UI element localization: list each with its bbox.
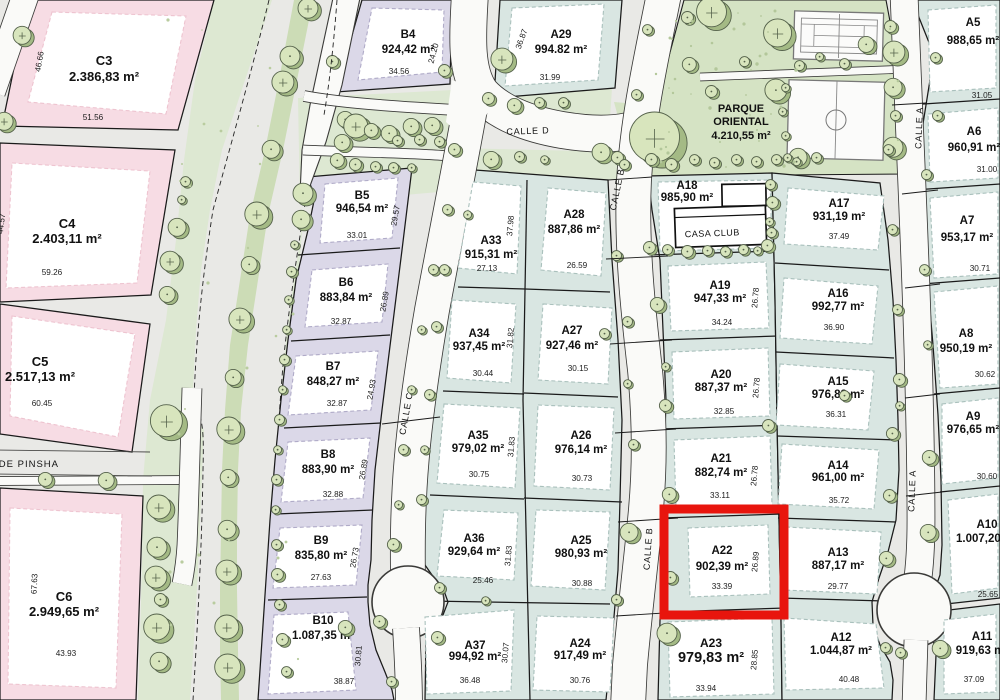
svg-text:976,88 m²: 976,88 m² [812,389,865,401]
svg-text:32.88: 32.88 [323,490,344,499]
svg-text:26.78: 26.78 [749,465,760,487]
svg-text:A24: A24 [569,638,591,650]
svg-text:2.517,13 m²: 2.517,13 m² [5,369,76,384]
svg-text:28.85: 28.85 [749,649,760,671]
svg-text:C6: C6 [56,589,73,604]
svg-text:A17: A17 [828,198,849,210]
svg-text:B10: B10 [312,615,333,627]
svg-text:34.56: 34.56 [389,67,410,76]
svg-text:A10: A10 [976,519,997,531]
svg-text:A34: A34 [468,328,490,340]
svg-text:35.72: 35.72 [829,496,850,505]
svg-text:31.83: 31.83 [503,545,514,567]
svg-text:B9: B9 [314,535,329,547]
svg-text:A35: A35 [467,430,489,442]
svg-text:887,17 m²: 887,17 m² [812,560,865,572]
svg-text:950,19 m²: 950,19 m² [940,343,993,355]
svg-text:2.386,83 m²: 2.386,83 m² [69,69,140,84]
svg-text:994,92 m²: 994,92 m² [449,651,502,663]
svg-text:937,45 m²: 937,45 m² [453,341,506,353]
svg-text:A9: A9 [966,411,981,423]
svg-text:A13: A13 [827,547,848,559]
svg-text:O DE PINSHA: O DE PINSHA [0,459,59,470]
svg-text:CASA CLUB: CASA CLUB [685,227,740,239]
svg-text:985,90 m²: 985,90 m² [661,192,714,204]
svg-text:A21: A21 [710,453,732,465]
svg-text:B8: B8 [321,449,336,461]
svg-text:B4: B4 [401,29,416,41]
svg-text:PARQUE: PARQUE [718,103,764,115]
svg-text:32.87: 32.87 [327,399,348,408]
svg-text:32.87: 32.87 [331,317,352,326]
svg-text:67.63: 67.63 [29,573,39,594]
svg-text:36.90: 36.90 [824,323,845,332]
svg-text:CALLE D: CALLE D [506,125,549,136]
svg-text:C3: C3 [96,53,113,68]
svg-text:A20: A20 [710,369,731,381]
svg-text:37.09: 37.09 [964,675,985,684]
svg-text:A6: A6 [967,126,982,138]
svg-text:30.76: 30.76 [570,676,591,685]
svg-text:1.044,87 m²: 1.044,87 m² [810,645,872,657]
svg-text:A33: A33 [480,235,501,247]
svg-text:33.39: 33.39 [712,582,733,591]
svg-text:30.62: 30.62 [975,370,996,379]
svg-text:A11: A11 [972,631,993,643]
svg-text:C5: C5 [32,354,49,369]
svg-text:30.60: 30.60 [977,472,998,481]
svg-text:31.82: 31.82 [505,327,516,349]
svg-text:1.007,20 m²: 1.007,20 m² [956,533,1000,545]
svg-text:34.24: 34.24 [712,318,733,327]
svg-text:26.78: 26.78 [751,377,762,399]
svg-text:A27: A27 [561,325,582,337]
svg-text:32.85: 32.85 [714,407,735,416]
svg-text:43.93: 43.93 [56,649,77,658]
svg-text:30.71: 30.71 [970,264,991,273]
svg-text:947,33 m²: 947,33 m² [694,293,747,305]
svg-text:26.59: 26.59 [567,261,588,270]
svg-text:B6: B6 [339,277,354,289]
svg-text:A8: A8 [959,328,974,340]
svg-text:CALLE A: CALLE A [906,470,917,512]
svg-text:917,49 m²: 917,49 m² [554,650,607,662]
svg-text:A14: A14 [827,460,849,472]
svg-text:A16: A16 [827,288,848,300]
svg-text:883,84 m²: 883,84 m² [320,292,373,304]
svg-text:946,54 m²: 946,54 m² [336,203,389,215]
svg-text:31.83: 31.83 [506,436,517,458]
svg-text:A19: A19 [709,280,730,292]
svg-text:31.00: 31.00 [977,165,998,174]
svg-text:960,91 m²: 960,91 m² [948,142,1000,154]
svg-text:2.949,65 m²: 2.949,65 m² [29,604,100,619]
svg-text:30.15: 30.15 [568,364,589,373]
svg-text:30.81: 30.81 [353,645,364,667]
svg-text:4.210,55 m²: 4.210,55 m² [711,130,771,142]
svg-text:59.26: 59.26 [42,268,63,277]
svg-text:60.45: 60.45 [32,399,53,408]
svg-text:961,00 m²: 961,00 m² [812,472,865,484]
svg-text:924,42 m²: 924,42 m² [382,44,435,56]
svg-text:25.65: 25.65 [978,590,999,599]
svg-text:A22: A22 [711,545,732,557]
svg-text:26.89: 26.89 [750,551,761,573]
svg-text:A12: A12 [830,632,851,644]
svg-text:979,83 m²: 979,83 m² [678,650,744,666]
svg-text:31.05: 31.05 [972,91,993,100]
svg-text:30.88: 30.88 [572,579,593,588]
svg-text:30.75: 30.75 [469,470,490,479]
svg-text:883,90 m²: 883,90 m² [302,464,355,476]
svg-text:976,14 m²: 976,14 m² [555,444,608,456]
svg-text:927,46 m²: 927,46 m² [546,340,599,352]
svg-text:33.01: 33.01 [347,231,368,240]
svg-text:CALLE A: CALLE A [913,107,924,149]
svg-text:29.77: 29.77 [828,582,849,591]
svg-text:30.07: 30.07 [500,642,511,664]
svg-text:B5: B5 [355,190,370,202]
svg-text:33.94: 33.94 [696,684,717,693]
svg-text:992,77 m²: 992,77 m² [812,301,865,313]
svg-text:980,93 m²: 980,93 m² [555,548,608,560]
svg-text:A29: A29 [550,29,571,41]
svg-text:988,65 m²: 988,65 m² [947,35,1000,47]
svg-text:27.13: 27.13 [477,264,498,273]
svg-text:31.99: 31.99 [540,73,561,82]
svg-text:915,31 m²: 915,31 m² [465,249,518,261]
svg-text:994.82 m²: 994.82 m² [535,44,588,56]
svg-text:26.78: 26.78 [750,287,761,309]
svg-text:C4: C4 [59,216,76,231]
svg-text:37.98: 37.98 [505,215,516,237]
svg-text:882,74 m²: 882,74 m² [695,467,748,479]
svg-text:2.403,11 m²: 2.403,11 m² [32,231,102,246]
svg-text:36.48: 36.48 [460,676,481,685]
svg-text:919,63 m²: 919,63 m² [956,645,1000,657]
svg-text:A28: A28 [563,209,585,221]
svg-text:A18: A18 [676,180,698,192]
svg-text:A23: A23 [700,636,722,650]
svg-text:979,02 m²: 979,02 m² [452,443,505,455]
svg-text:A5: A5 [966,17,981,29]
svg-text:ORIENTAL: ORIENTAL [713,116,769,128]
svg-text:A36: A36 [463,533,484,545]
svg-text:A7: A7 [960,215,975,227]
svg-text:B7: B7 [326,361,341,373]
svg-text:835,80 m²: 835,80 m² [295,550,348,562]
svg-text:33.11: 33.11 [710,491,730,500]
svg-text:38.87: 38.87 [334,677,355,686]
svg-text:887,37 m²: 887,37 m² [695,382,748,394]
svg-text:976,65 m²: 976,65 m² [947,424,1000,436]
svg-text:929,64 m²: 929,64 m² [448,546,501,558]
svg-text:A26: A26 [570,430,591,442]
svg-text:51.56: 51.56 [83,113,104,122]
svg-text:30.73: 30.73 [572,474,593,483]
svg-text:931,19 m²: 931,19 m² [813,211,866,223]
svg-text:27.63: 27.63 [311,573,332,582]
svg-text:A15: A15 [827,376,849,388]
svg-text:887,86 m²: 887,86 m² [548,224,601,236]
svg-text:30.44: 30.44 [473,369,494,378]
svg-text:A25: A25 [570,535,592,547]
svg-text:36.31: 36.31 [826,410,847,419]
svg-text:902,39 m²: 902,39 m² [696,561,749,573]
svg-text:848,27 m²: 848,27 m² [307,376,360,388]
svg-text:25.46: 25.46 [473,576,494,585]
svg-text:40.48: 40.48 [839,675,860,684]
svg-text:953,17 m²: 953,17 m² [941,232,994,244]
svg-text:37.49: 37.49 [829,232,850,241]
